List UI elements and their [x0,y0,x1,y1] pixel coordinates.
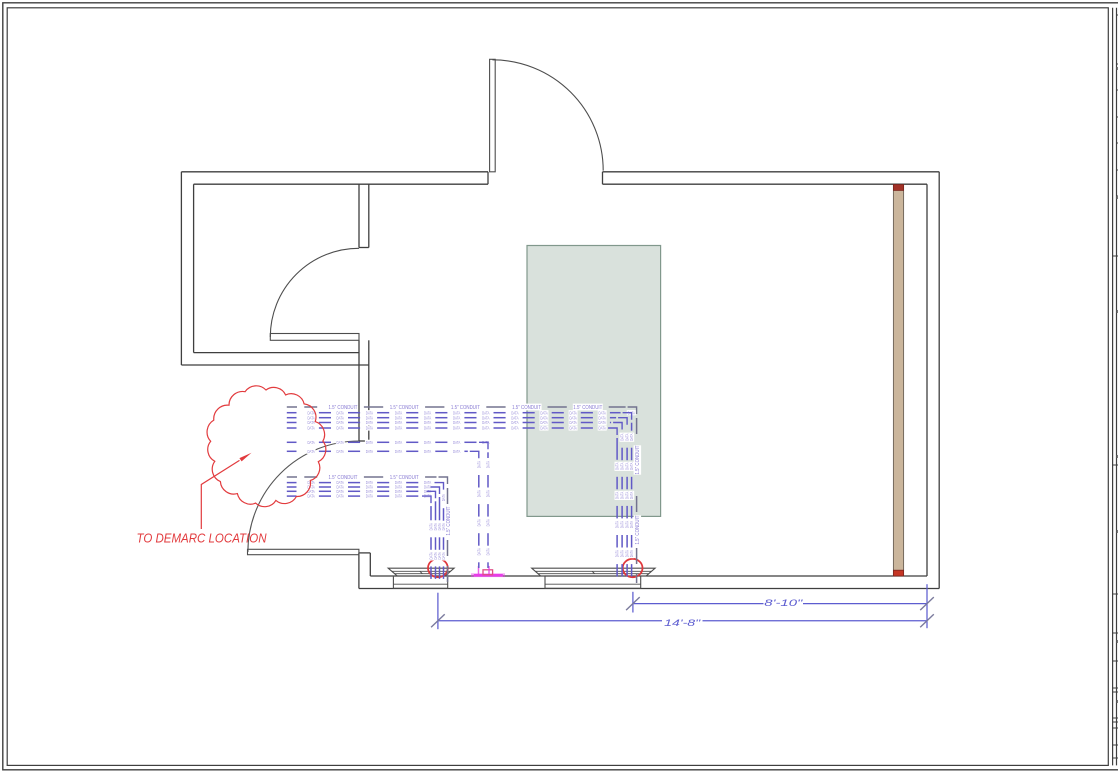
svg-text:DATA: DATA [337,426,344,431]
svg-text:DATA: DATA [482,426,489,431]
svg-text:DATA: DATA [486,519,491,526]
svg-text:DATA: DATA [511,420,518,425]
svg-text:DATA: DATA [366,420,373,425]
svg-text:DATA: DATA [540,420,547,425]
svg-text:1.5" CONDUIT: 1.5" CONDUIT [635,445,641,474]
svg-text:DATA: DATA [366,494,373,499]
svg-text:DATA: DATA [629,521,634,528]
svg-text:DATA: DATA [615,521,620,528]
svg-text:DATA: DATA [482,420,489,425]
svg-text:DATA: DATA [395,449,402,454]
svg-text:DATA: DATA [424,440,431,445]
svg-text:DATA: DATA [307,494,314,499]
svg-text:DATA: DATA [476,490,481,497]
svg-text:TO DEMARC LOCATION: TO DEMARC LOCATION [137,532,268,546]
svg-text:DATA: DATA [307,440,314,445]
svg-text:DATA: DATA [615,550,620,557]
svg-text:DATA: DATA [429,523,434,530]
svg-text:DATA: DATA [366,426,373,431]
svg-text:DATA: DATA [599,426,606,431]
svg-text:DATA: DATA [395,494,402,499]
svg-text:DATA: DATA [476,461,481,468]
svg-text:DATA: DATA [620,521,625,528]
svg-text:DATA: DATA [441,494,446,501]
svg-text:DATA: DATA [540,426,547,431]
svg-text:DATA: DATA [337,440,344,445]
svg-text:DATA: DATA [429,552,434,559]
svg-text:DATA: DATA [625,521,630,528]
svg-text:DATA: DATA [307,449,314,454]
svg-text:DATA: DATA [366,440,373,445]
svg-text:14'-8": 14'-8" [664,618,701,629]
svg-text:DATA: DATA [486,548,491,555]
svg-text:8'-10": 8'-10" [764,598,803,609]
svg-text:DATA: DATA [599,420,606,425]
svg-text:DATA: DATA [569,420,576,425]
svg-text:DATA: DATA [620,462,625,469]
svg-text:DATA: DATA [625,492,630,499]
svg-text:DATA: DATA [569,426,576,431]
svg-text:DATA: DATA [620,433,625,440]
svg-text:DATA: DATA [337,494,344,499]
svg-text:DATA: DATA [424,449,431,454]
svg-text:DATA: DATA [625,462,630,469]
svg-text:DATA: DATA [620,550,625,557]
svg-text:DATA: DATA [625,433,630,440]
svg-text:DATA: DATA [615,462,620,469]
svg-text:DATA: DATA [453,449,460,454]
svg-text:DATA: DATA [307,420,314,425]
svg-text:DATA: DATA [629,462,634,469]
svg-text:DATA: DATA [453,426,460,431]
svg-text:DATA: DATA [433,552,438,559]
svg-text:DATA: DATA [629,492,634,499]
svg-text:DATA: DATA [395,426,402,431]
svg-text:DATA: DATA [366,449,373,454]
svg-text:DATA: DATA [486,461,491,468]
svg-text:DATA: DATA [337,420,344,425]
svg-text:DATA: DATA [395,420,402,425]
svg-text:DATA: DATA [629,550,634,557]
svg-text:1.5" CONDUIT: 1.5" CONDUIT [635,515,641,544]
svg-text:DATA: DATA [395,440,402,445]
svg-text:DATA: DATA [424,426,431,431]
svg-text:DATA: DATA [307,426,314,431]
svg-text:DATA: DATA [453,440,460,445]
svg-text:DATA: DATA [433,523,438,530]
svg-text:DATA: DATA [453,420,460,425]
svg-text:DATA: DATA [615,492,620,499]
svg-text:DATA: DATA [476,519,481,526]
svg-text:DATA: DATA [620,492,625,499]
svg-text:1.5" CONDUIT: 1.5" CONDUIT [446,506,452,535]
svg-text:DATA: DATA [486,490,491,497]
svg-text:DATA: DATA [337,449,344,454]
svg-text:DATA: DATA [625,550,630,557]
svg-text:DATA: DATA [629,433,634,440]
svg-text:DATA: DATA [476,548,481,555]
svg-text:DATA: DATA [424,420,431,425]
svg-text:DATA: DATA [511,426,518,431]
